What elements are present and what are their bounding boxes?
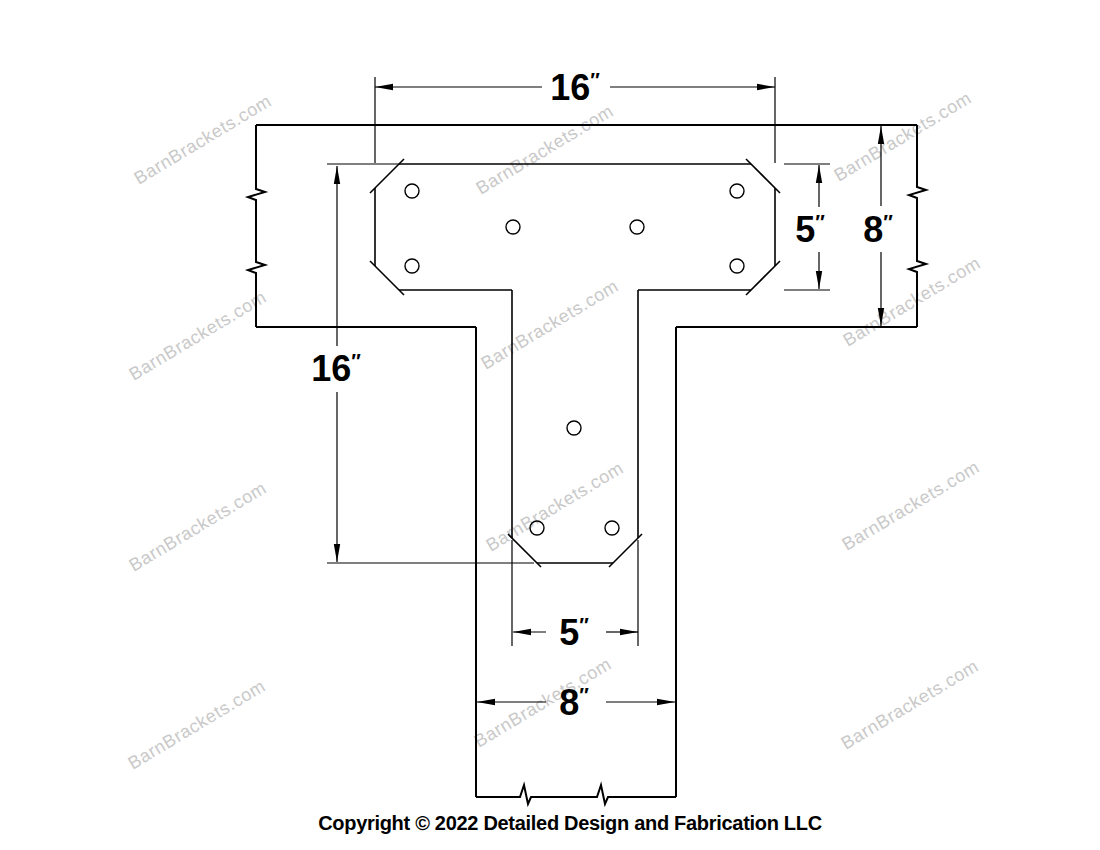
- bolt-hole: [405, 259, 419, 273]
- dimension-label-leg-length: 16″: [311, 348, 361, 389]
- break-line-bottom: [476, 785, 676, 804]
- chamfer-bottom-right: [746, 261, 780, 295]
- dimension-plate-width: 16″: [375, 67, 775, 163]
- chamfer-leg-left: [508, 534, 541, 567]
- dimension-leg-length: 16″: [311, 164, 534, 563]
- bolt-holes: [405, 184, 744, 535]
- bolt-hole: [567, 421, 581, 435]
- bolt-hole: [730, 259, 744, 273]
- chamfer-top-right: [746, 159, 780, 193]
- bolt-hole: [405, 184, 419, 198]
- dimension-plate-height: 5″: [784, 164, 830, 290]
- drawing-canvas: BarnBrackets.com BarnBrackets.com BarnBr…: [0, 0, 1100, 850]
- bolt-hole: [530, 521, 544, 535]
- bracket-plate-outline: [370, 159, 780, 567]
- break-line-right: [909, 125, 926, 327]
- copyright-text: Copyright © 2022 Detailed Design and Fab…: [318, 812, 822, 835]
- bolt-hole: [630, 220, 644, 234]
- t-bracket-technical-drawing: 16″ 5″ 8″ 16″: [0, 0, 1100, 850]
- chamfer-bottom-left: [370, 261, 404, 295]
- dimension-label-plate-width: 16″: [550, 67, 600, 108]
- dimension-beam-depth: 8″: [863, 126, 893, 326]
- bolt-hole: [730, 184, 744, 198]
- bolt-hole: [605, 521, 619, 535]
- bolt-hole: [506, 220, 520, 234]
- dimension-label-leg-width: 5″: [559, 612, 589, 653]
- dimension-label-post-width: 8″: [559, 682, 589, 723]
- chamfer-leg-right: [609, 534, 642, 567]
- dimension-label-beam-depth: 8″: [863, 209, 893, 250]
- dimension-post-width: 8″: [477, 682, 675, 723]
- vertical-post-outline: [476, 327, 676, 804]
- dimension-label-plate-height: 5″: [795, 209, 825, 250]
- break-line-left: [248, 125, 265, 327]
